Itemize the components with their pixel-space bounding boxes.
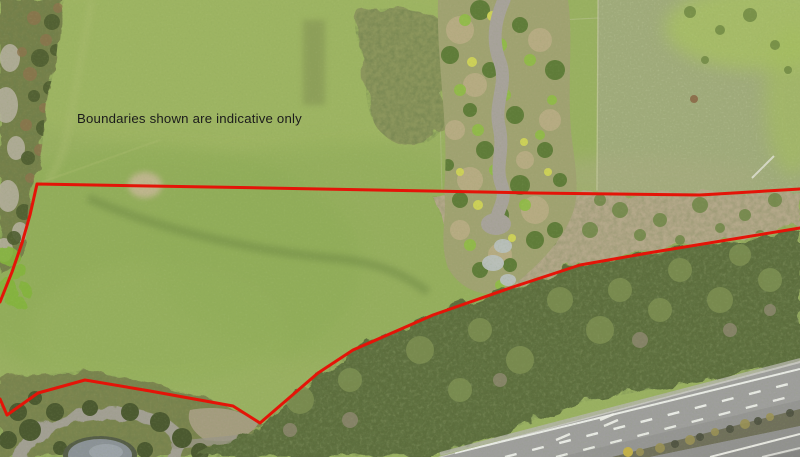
aerial-photo-canvas: Boundaries shown are indicative only: [0, 0, 800, 457]
boundary-disclaimer: Boundaries shown are indicative only: [77, 111, 302, 126]
aerial-photo: Boundaries shown are indicative only: [0, 0, 800, 457]
grain-texture-light: [0, 0, 800, 457]
